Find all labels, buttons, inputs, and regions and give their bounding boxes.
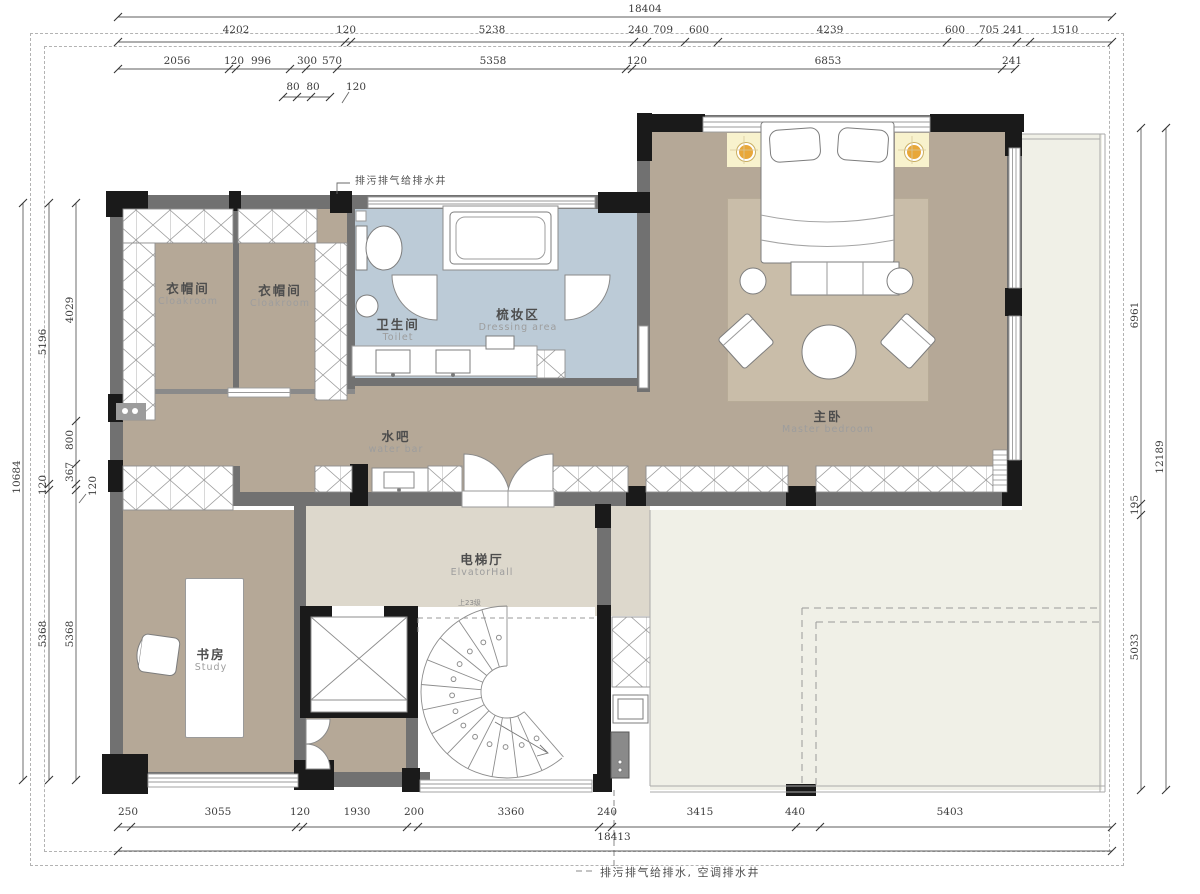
dim: 996 [238, 55, 284, 67]
dim: 10684 [11, 454, 23, 500]
terrace-dashed-line [802, 608, 1100, 786]
lounge-chair [880, 313, 936, 369]
dim: 5403 [927, 806, 973, 818]
dim: 600 [676, 24, 722, 36]
washer-icon [116, 403, 146, 420]
dim: 120 [277, 806, 323, 818]
dim-bottom-total: 18413 [591, 831, 637, 843]
dim: 241 [989, 55, 1035, 67]
dim: 5033 [1129, 624, 1141, 670]
dim: 1510 [1042, 24, 1088, 36]
dim: 6853 [805, 55, 851, 67]
utility-fixtures [611, 695, 648, 778]
dim: 120 [87, 463, 99, 509]
dim: 1930 [334, 806, 380, 818]
dim: 120 [614, 55, 660, 67]
bathroom-fixtures [352, 206, 558, 377]
bed-bench [791, 262, 899, 295]
dim: 5368 [64, 611, 76, 657]
vanity-sink [436, 350, 470, 373]
study-chair [135, 633, 181, 676]
dim: 4029 [64, 287, 76, 333]
dim: 12189 [1154, 434, 1166, 480]
room-label-waterbar: 水吧 water bar [369, 430, 424, 455]
room-label-study: 书房 Study [195, 648, 227, 673]
dim: 440 [772, 806, 818, 818]
dim: 2056 [154, 55, 200, 67]
dim: 5238 [469, 24, 515, 36]
dim: 120 [37, 462, 49, 508]
bottom-drain-note: 排污排气给排水, 空调排水井 [600, 864, 760, 880]
dim: 4239 [807, 24, 853, 36]
small-room-door [306, 719, 330, 744]
dim: 4202 [213, 24, 259, 36]
stair-cut-line [418, 618, 595, 632]
floor-plan-canvas: 18404 4202 120 5238 240 709 600 4239 600… [0, 0, 1200, 894]
dim: 5196 [37, 319, 49, 365]
room-label-elevator-hall: 电梯厅 ElvatorHall [451, 553, 514, 578]
toilet-tank [356, 226, 367, 270]
elevator-shaft [300, 606, 418, 718]
dim: 367 [64, 449, 76, 495]
bed [761, 122, 899, 295]
small-room-door [306, 744, 330, 769]
dim: 3055 [195, 806, 241, 818]
dim: 5368 [37, 611, 49, 657]
dim: 195 [1129, 482, 1141, 528]
dim: 240 [584, 806, 630, 818]
dim: 120 [323, 24, 369, 36]
room-label-dressing: 梳妆区 Dressing area [479, 308, 558, 333]
dim: 241 [990, 24, 1036, 36]
dim: 570 [309, 55, 355, 67]
lounge-chair [718, 313, 774, 369]
dim: 200 [391, 806, 437, 818]
spiral-staircase [421, 606, 562, 778]
dim: 80 [290, 81, 336, 93]
room-label-toilet: 卫生间 Toilet [376, 318, 420, 343]
dim: 6961 [1129, 292, 1141, 338]
fine-hatch-cabinet [993, 450, 1007, 492]
vanity-sink [376, 350, 410, 373]
room-label-cloakroom1: 衣帽间 Cloakroom [158, 282, 218, 307]
toilet-door [392, 275, 437, 320]
round-basin [356, 295, 378, 317]
dim-top-total: 18404 [622, 3, 668, 15]
dim: 250 [105, 806, 151, 818]
top-drain-note: 排污排气给排水井 [355, 172, 447, 187]
room-label-master-bedroom: 主卧 Master bedroom [782, 410, 874, 435]
dim: 5358 [470, 55, 516, 67]
dim: 3360 [488, 806, 534, 818]
dressing-door [565, 275, 610, 320]
dim: 120 [333, 81, 379, 93]
ottoman [802, 325, 856, 379]
room-label-cloakroom2: 衣帽间 Cloakroom [250, 284, 310, 309]
dim: 3415 [677, 806, 723, 818]
water-bar-counter [372, 468, 428, 492]
side-table [740, 268, 766, 294]
stair-count-note: 上23级 [458, 598, 481, 608]
side-table [887, 268, 913, 294]
dressing-stool [486, 336, 514, 349]
toilet-bowl [366, 226, 402, 270]
plan-linework [0, 0, 1200, 894]
